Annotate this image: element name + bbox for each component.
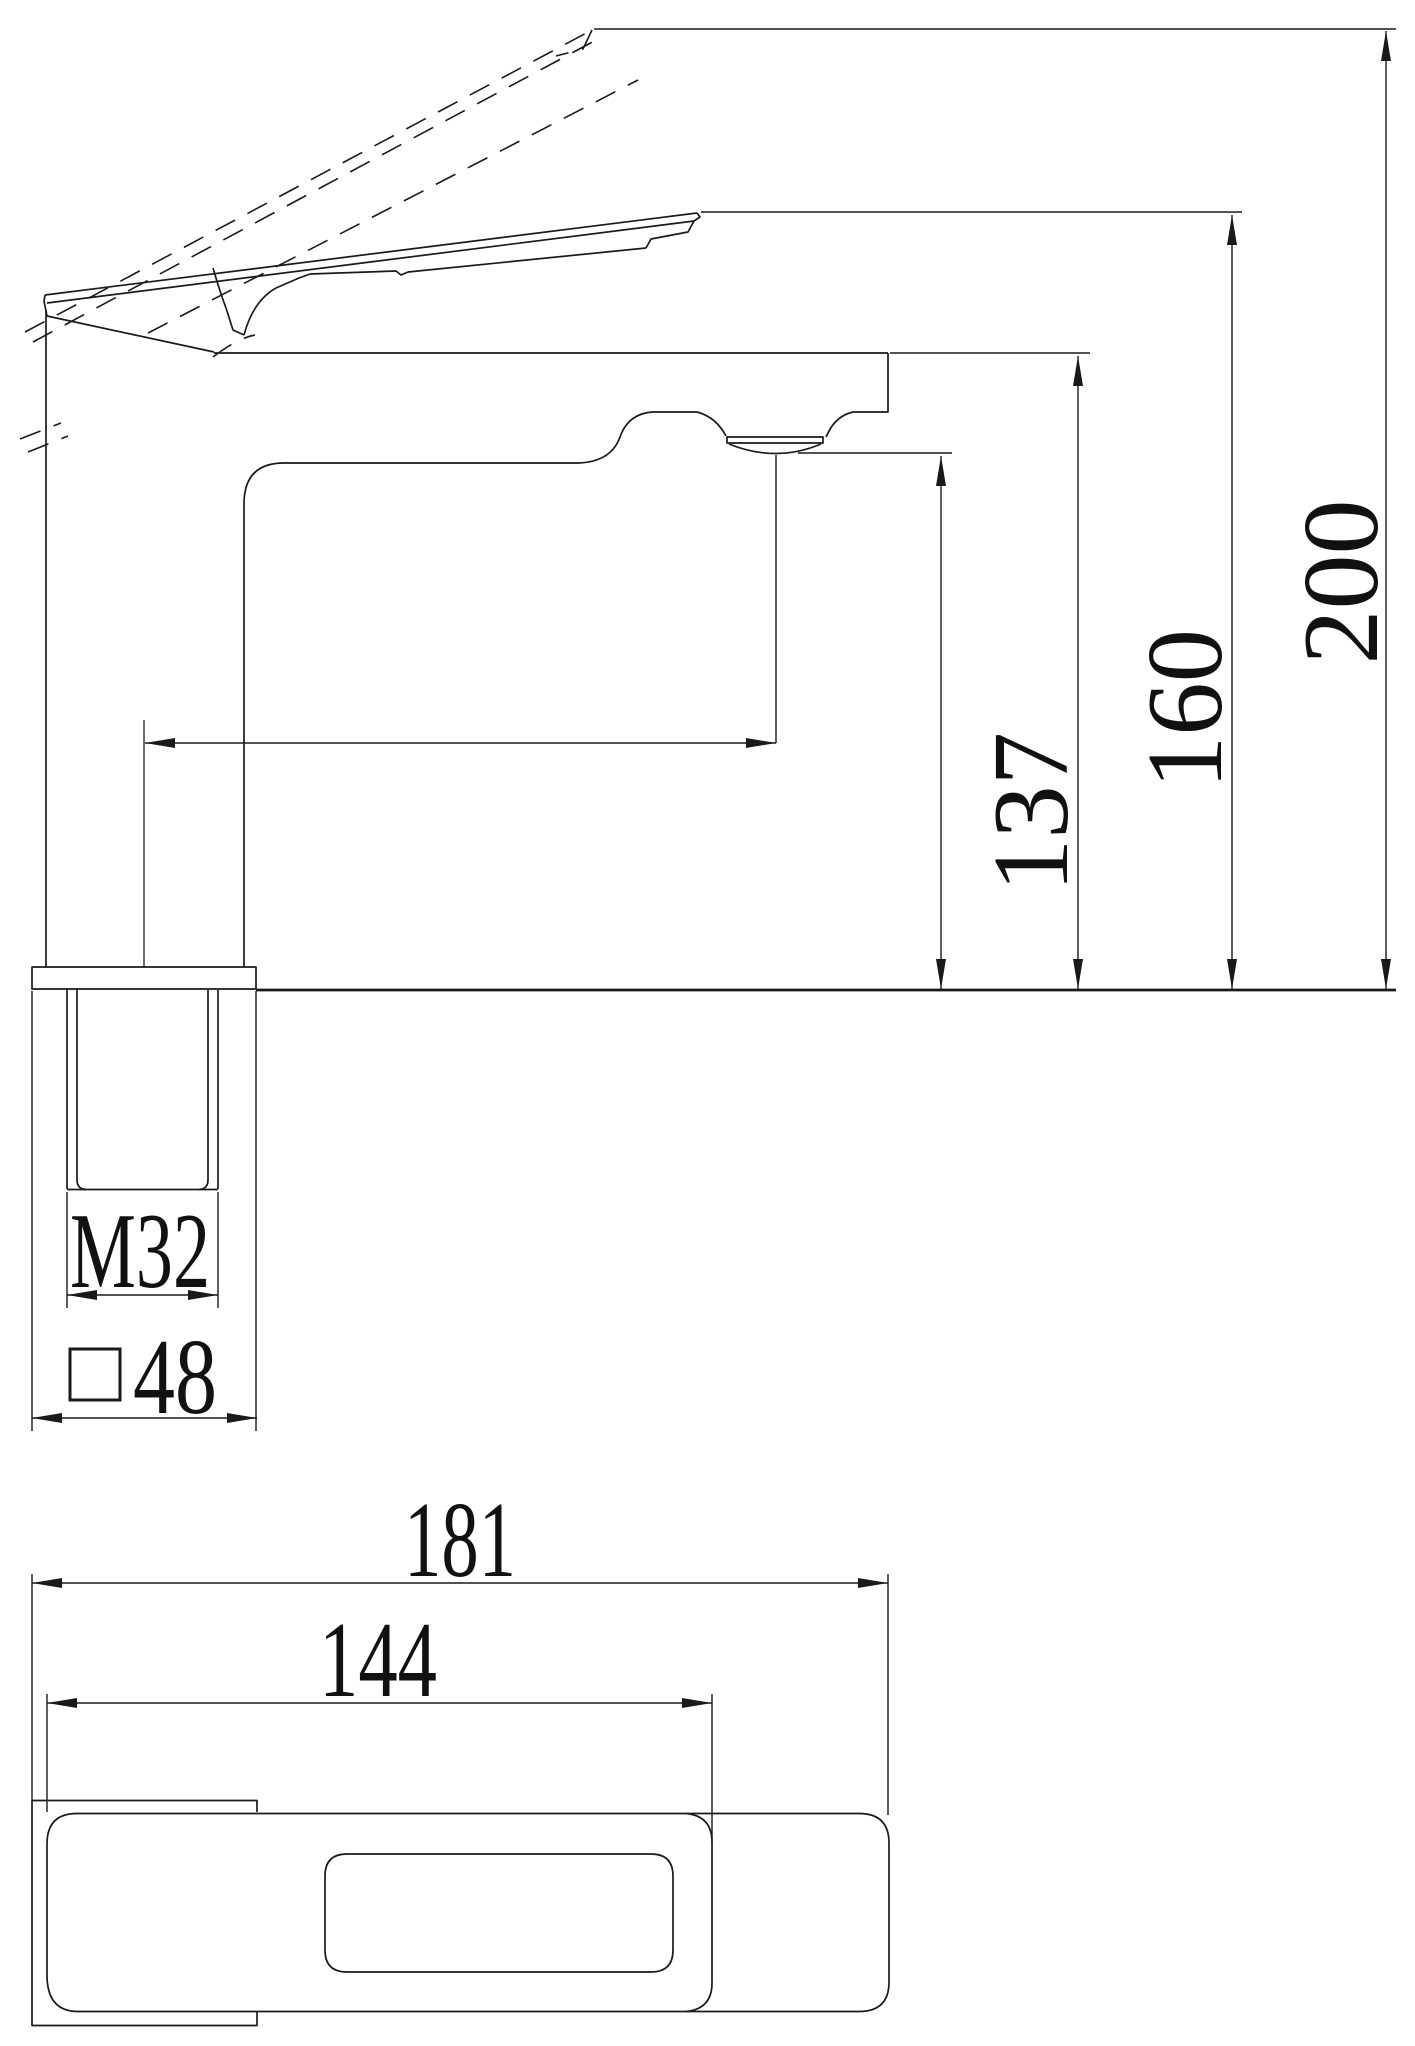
arrowhead-down bbox=[1227, 959, 1237, 989]
handle-underside bbox=[408, 248, 646, 272]
dimension-height-aerator bbox=[798, 453, 952, 989]
arrowhead-left bbox=[145, 738, 175, 748]
open-handle-heel bbox=[20, 423, 68, 452]
body-plan-outline bbox=[77, 1814, 889, 2012]
bottom-view: 181 144 bbox=[32, 1481, 889, 2026]
spout-right-edge bbox=[853, 353, 888, 412]
dimension-height-spout-top: 137 bbox=[890, 353, 1091, 989]
reach-length-label: 144 bbox=[319, 1601, 437, 1720]
overall-height-label: 160 bbox=[1126, 629, 1245, 789]
arrowhead-down bbox=[936, 959, 946, 989]
handle-tip-plan-contour bbox=[686, 1814, 712, 2012]
handle-tip-notch bbox=[646, 221, 694, 248]
cartridge-cap-curve bbox=[244, 288, 276, 335]
arrowhead-right bbox=[858, 1578, 888, 1588]
arrowhead-down bbox=[1073, 959, 1083, 989]
handle-top-edge bbox=[45, 213, 697, 295]
aerator-ring bbox=[727, 437, 823, 443]
arrowhead-left bbox=[32, 1413, 62, 1423]
spout-height-label: 137 bbox=[972, 732, 1091, 892]
base-plate bbox=[32, 967, 256, 989]
open-height-label: 200 bbox=[1282, 500, 1401, 665]
base-plate-plan bbox=[32, 1801, 257, 2026]
arrowhead-up bbox=[936, 456, 946, 486]
aerator-right-flare bbox=[826, 412, 853, 437]
faucet-technical-drawing: 137 160 200 M32 bbox=[0, 0, 1415, 2046]
arrowhead-down bbox=[1381, 959, 1391, 989]
bottom-outline bbox=[32, 1801, 889, 2026]
base-square-label: 48 bbox=[133, 1318, 217, 1437]
arrowhead-right bbox=[746, 738, 776, 748]
arrowhead-left bbox=[47, 1698, 77, 1708]
mounting-shank bbox=[67, 990, 218, 1190]
body-plan-left-corners bbox=[47, 1814, 78, 2012]
handle-plan-outline bbox=[325, 1854, 673, 1972]
aerator-left-flare bbox=[697, 412, 726, 436]
handle-underside-wedge bbox=[47, 316, 214, 352]
square-section-icon bbox=[70, 1349, 120, 1400]
arrowhead-right bbox=[227, 1413, 257, 1423]
aerator-bulge bbox=[729, 444, 821, 454]
faucet-outline bbox=[44, 213, 888, 967]
handle-top-edge-inner bbox=[47, 221, 694, 303]
open-handle-top-line-2 bbox=[33, 39, 598, 342]
arrowhead-up bbox=[1227, 215, 1237, 245]
arrowhead-right bbox=[682, 1698, 712, 1708]
body-inner-corner bbox=[244, 463, 284, 504]
arrowhead-left bbox=[32, 1578, 62, 1588]
handle-tip bbox=[694, 213, 700, 221]
side-view: 137 160 200 M32 bbox=[20, 29, 1401, 1437]
cartridge-cap-ledge bbox=[226, 308, 244, 335]
overall-length-label: 181 bbox=[404, 1481, 516, 1600]
dimension-spout-reach-horizontal bbox=[145, 455, 776, 748]
cartridge-cap-left bbox=[213, 268, 226, 308]
thread-label: M32 bbox=[70, 1192, 210, 1311]
arrowhead-up bbox=[1073, 356, 1083, 386]
dimension-length-to-handle-tip: 144 bbox=[47, 1601, 712, 1843]
cartridge-cap-step bbox=[276, 274, 310, 288]
arrowhead-up bbox=[1381, 31, 1391, 61]
technical-drawing-page: 137 160 200 M32 bbox=[0, 0, 1415, 2046]
cartridge-cap-top bbox=[310, 271, 408, 275]
shank-thread-right bbox=[199, 990, 208, 1190]
dimension-thread: M32 bbox=[67, 1192, 218, 1311]
shank-thread-left bbox=[77, 990, 86, 1190]
spout-underside-step bbox=[578, 412, 652, 463]
dimension-overall-length: 181 bbox=[32, 1481, 888, 1815]
handle-open-dashed bbox=[20, 30, 638, 452]
